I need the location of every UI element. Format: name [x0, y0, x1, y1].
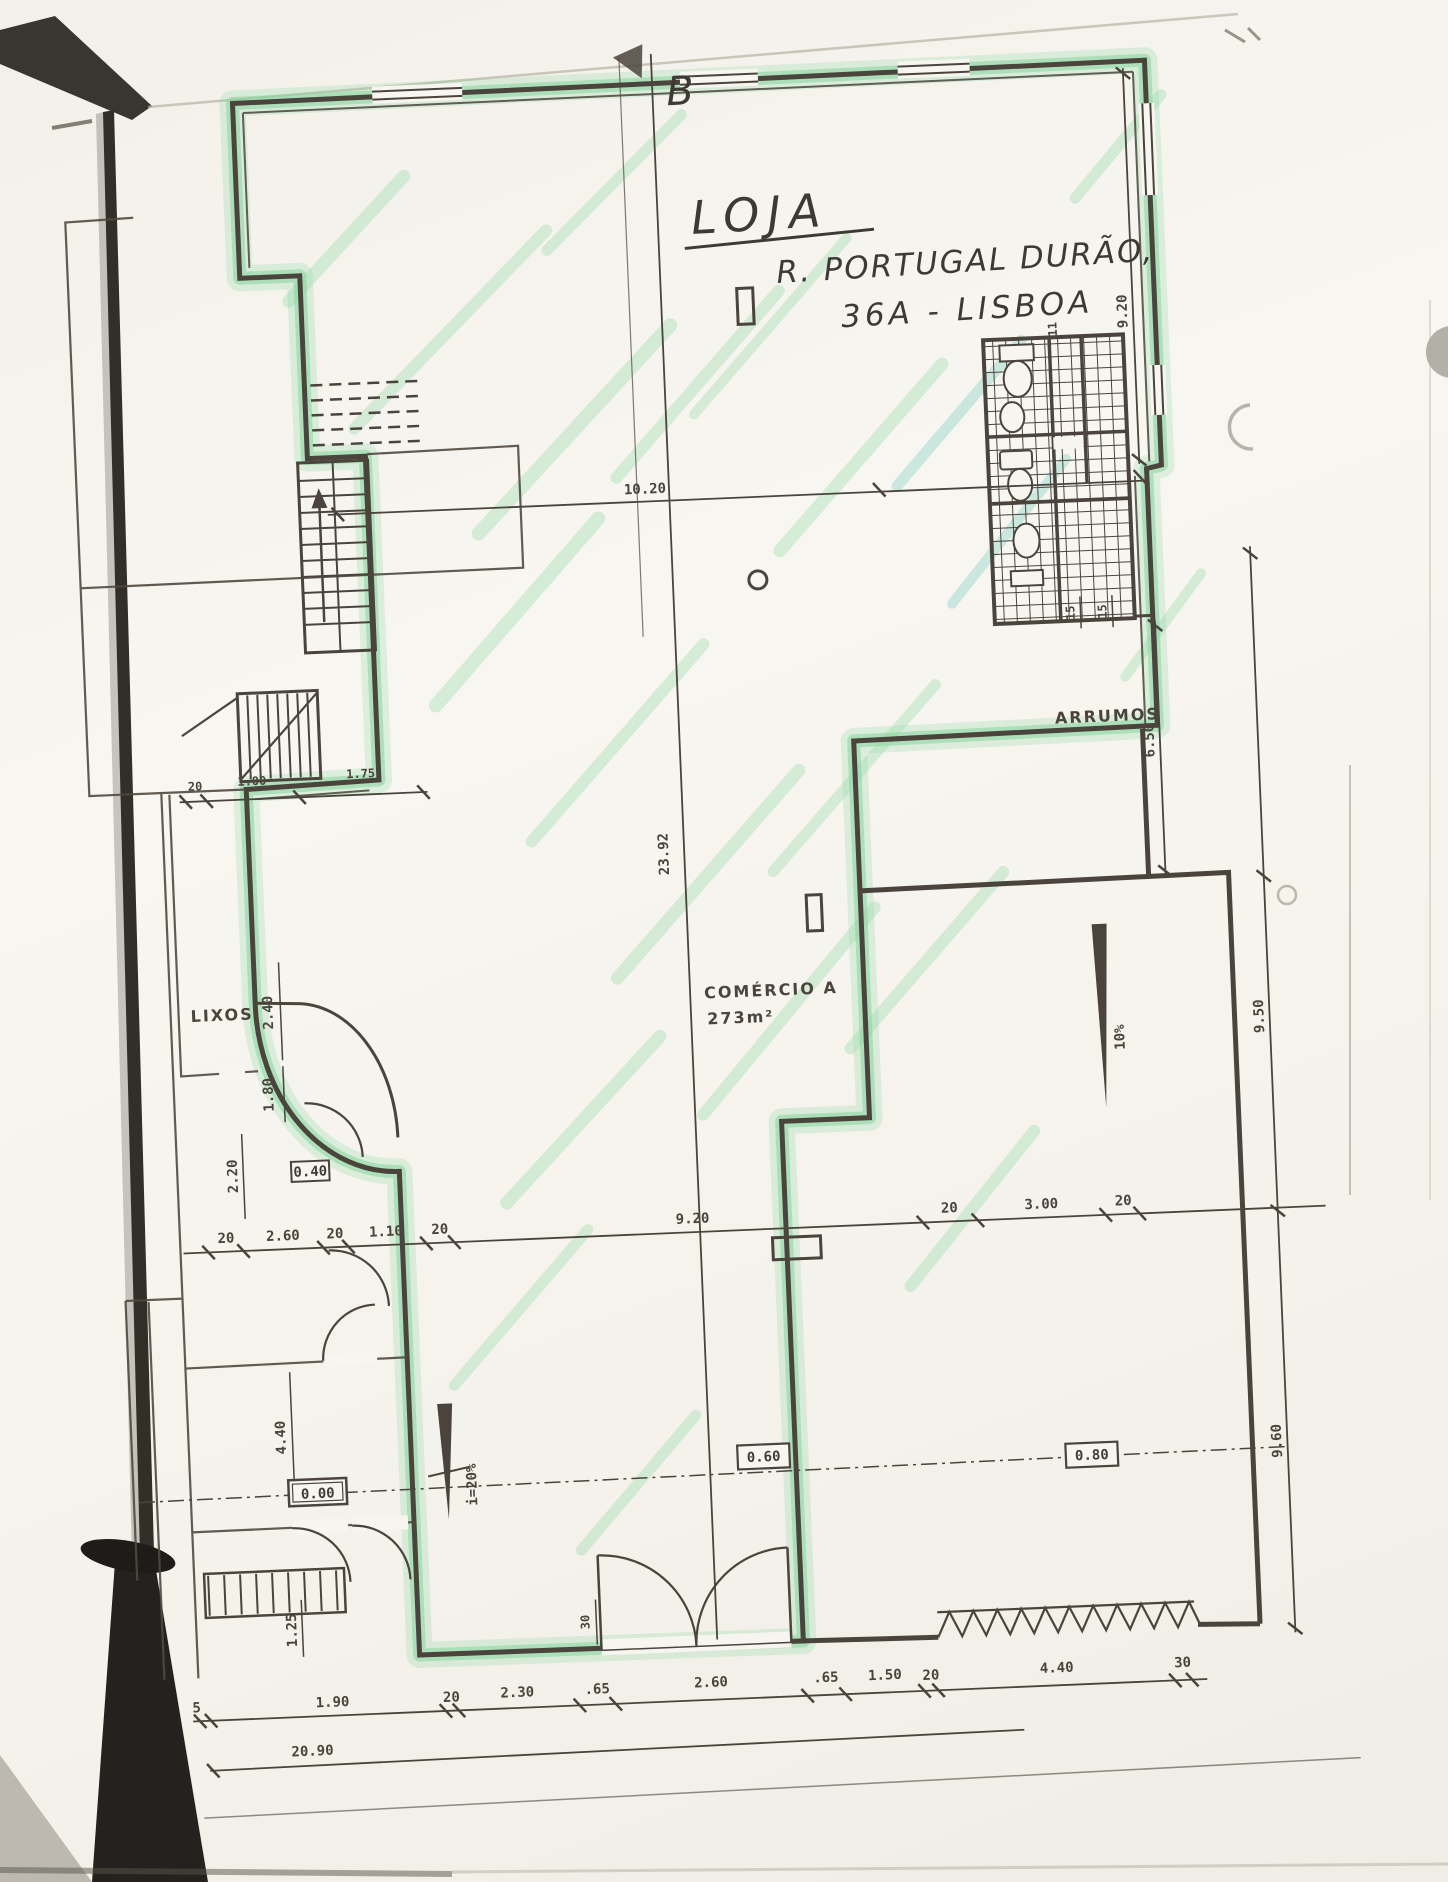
dim-bot-3: 2.30: [500, 1684, 534, 1701]
dim-bot-7: 1.50: [868, 1667, 902, 1684]
dim-bot-6: .65: [813, 1669, 839, 1686]
dim-mid-5: 9.20: [675, 1210, 709, 1227]
dim-wc-top: 11: [1045, 322, 1060, 337]
dim-mid-2: 20: [326, 1226, 344, 1243]
title-line2: R. PORTUGAL DURÃO,: [775, 233, 1155, 291]
dim-bot-4: .65: [584, 1681, 610, 1698]
highlighter-streaks: [282, 94, 1241, 1560]
dim-mid-1: 2.60: [266, 1228, 300, 1245]
section-marker-label: B: [665, 68, 694, 115]
dim-door: 30: [578, 1615, 593, 1630]
dim-left-4: 1.25: [284, 1613, 301, 1647]
floor-plan-scan: B i=20% 10%: [0, 0, 1448, 1882]
level-small: 0.40: [293, 1163, 327, 1180]
dim-bot-1: 1.90: [315, 1694, 349, 1711]
dim-mid-8: 20: [1114, 1193, 1132, 1210]
dim-right-mid: 9.50: [1251, 999, 1268, 1033]
dimension-lines: [81, 60, 1362, 1820]
interior-doors: [180, 692, 410, 1587]
dim-right-top: 9.20: [1114, 294, 1131, 328]
dim-bot-9: 4.40: [1040, 1660, 1074, 1677]
dim-stair-2: 1.75: [346, 766, 375, 781]
dim-storage-height: 6.50: [1141, 723, 1158, 757]
dim-total: 20.90: [291, 1743, 334, 1761]
dim-right-low: 9.60: [1269, 1424, 1286, 1458]
room-label-comercio-area: 273m²: [707, 1007, 775, 1029]
ramp-right: 10%: [1092, 923, 1132, 1108]
dim-depth: 23.92: [655, 833, 673, 876]
dim-left-3: 4.40: [273, 1420, 290, 1454]
room-labels: ARRUMOS LIXOS COMÉRCIO A 273m²: [179, 704, 1172, 1050]
ramp-left-label: i=20%: [464, 1463, 482, 1506]
dim-bot-0: 5: [192, 1700, 201, 1716]
stair-small: [237, 690, 321, 781]
scanned-floor-plan-sheet: B i=20% 10%: [0, 0, 1448, 1882]
level-entrance: 0.00: [301, 1485, 335, 1502]
dim-stair-0: 20: [188, 779, 203, 794]
dim-mid-4: 20: [431, 1221, 449, 1238]
dim-mid-3: 1.10: [369, 1223, 403, 1240]
dim-left-0: 2.40: [260, 996, 277, 1030]
dim-bot-10: 30: [1174, 1655, 1192, 1672]
dim-left-2: 2.20: [225, 1159, 242, 1193]
room-label-comercio: COMÉRCIO A: [704, 978, 838, 1003]
dim-mid-6: 20: [941, 1200, 959, 1217]
stair-bottom-left: [204, 1568, 346, 1618]
level-mid: 0.60: [746, 1449, 780, 1466]
dim-mid-0: 20: [217, 1230, 235, 1247]
ramp-left: i=20%: [425, 1402, 482, 1520]
ramp-right-label: 10%: [1112, 1024, 1129, 1051]
level-right: 0.80: [1075, 1447, 1109, 1464]
dim-bot-2: 20: [443, 1689, 461, 1706]
dim-stair-1: 1.00: [237, 774, 266, 789]
room-label-lixos: LIXOS: [190, 1004, 254, 1026]
dim-wc-1: 15: [1095, 604, 1110, 619]
dim-bot-8: 20: [922, 1667, 940, 1684]
dim-wc-0: 15: [1063, 605, 1078, 620]
dim-top-width: 10.20: [624, 481, 667, 499]
dim-left-1: 1.80: [260, 1078, 277, 1112]
walls: [217, 58, 1260, 1665]
dim-mid-7: 3.00: [1024, 1196, 1058, 1213]
ramp-hatch-zigzag: [937, 1601, 1200, 1637]
dim-bot-5: 2.60: [694, 1674, 728, 1691]
wc-block: [983, 334, 1135, 624]
floor-plan: B i=20% 10%: [59, 17, 1361, 1821]
